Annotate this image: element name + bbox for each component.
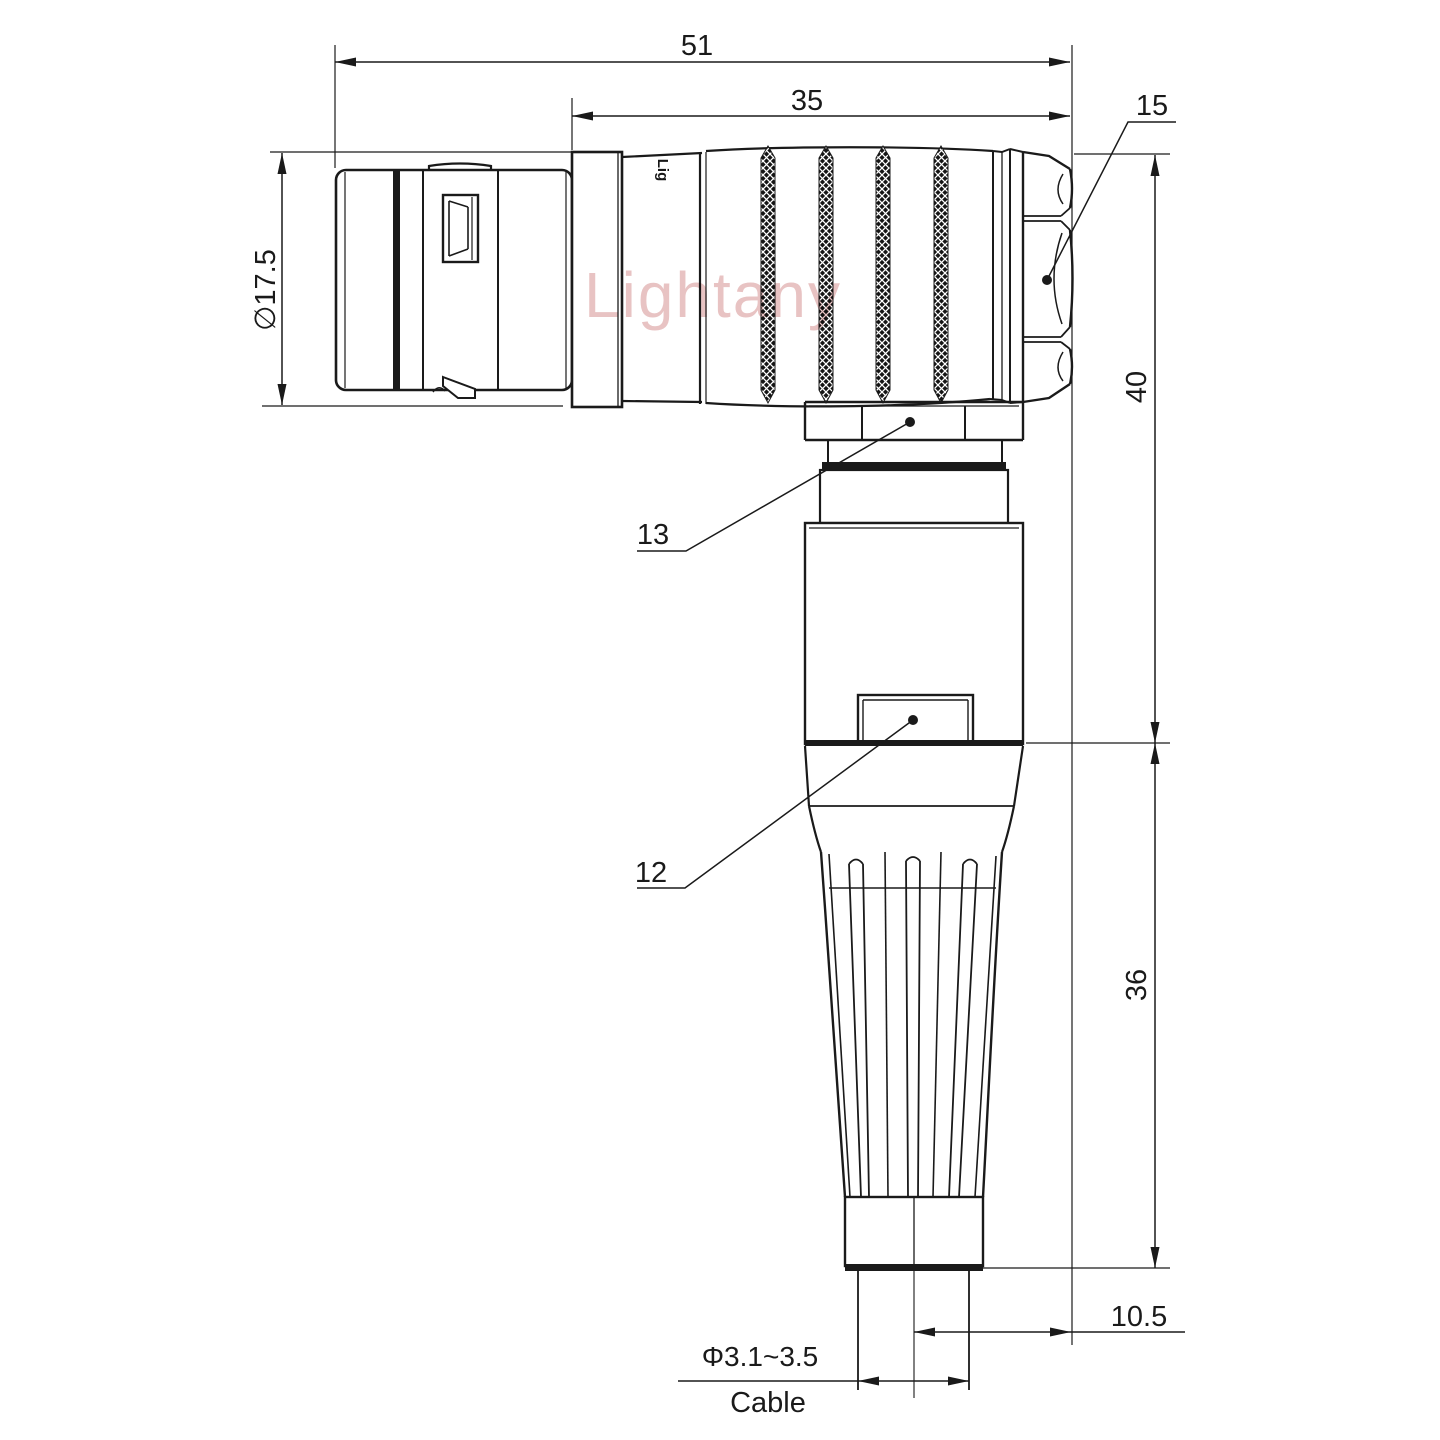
dim-rear-length-label: 35 — [767, 87, 847, 116]
dim-overall-length-label: 51 — [657, 32, 737, 61]
knurl-band — [876, 146, 890, 403]
dim-cable-diameter-label: Φ3.1~3.5 — [690, 1343, 830, 1371]
knurl-band — [934, 146, 948, 403]
strain-relief — [805, 746, 1023, 1197]
vertical-housing — [805, 523, 1023, 746]
dim-front-diameter-label: ∅17.5 — [252, 230, 282, 350]
plug-front-body — [336, 164, 572, 399]
cable-caption-label: Cable — [718, 1389, 818, 1418]
callout-nut-label: 15 — [1127, 92, 1177, 121]
dim-upper-height-label: 40 — [1123, 347, 1151, 427]
technical-drawing-canvas: Lightany Lig 51 35 15 ∅17.5 40 36 10.5 Φ… — [0, 0, 1440, 1440]
body-logo-text: Lig — [649, 150, 675, 190]
watermark-text: Lightany — [553, 258, 873, 332]
cable-ferrule — [845, 1197, 983, 1271]
callout-collar-nut-label: 13 — [628, 521, 678, 550]
dim-lower-height-label: 36 — [1123, 945, 1151, 1025]
callout-housing-label: 12 — [626, 859, 676, 888]
dim-side-offset-label: 10.5 — [1094, 1303, 1184, 1332]
connector-line-art — [0, 0, 1440, 1440]
